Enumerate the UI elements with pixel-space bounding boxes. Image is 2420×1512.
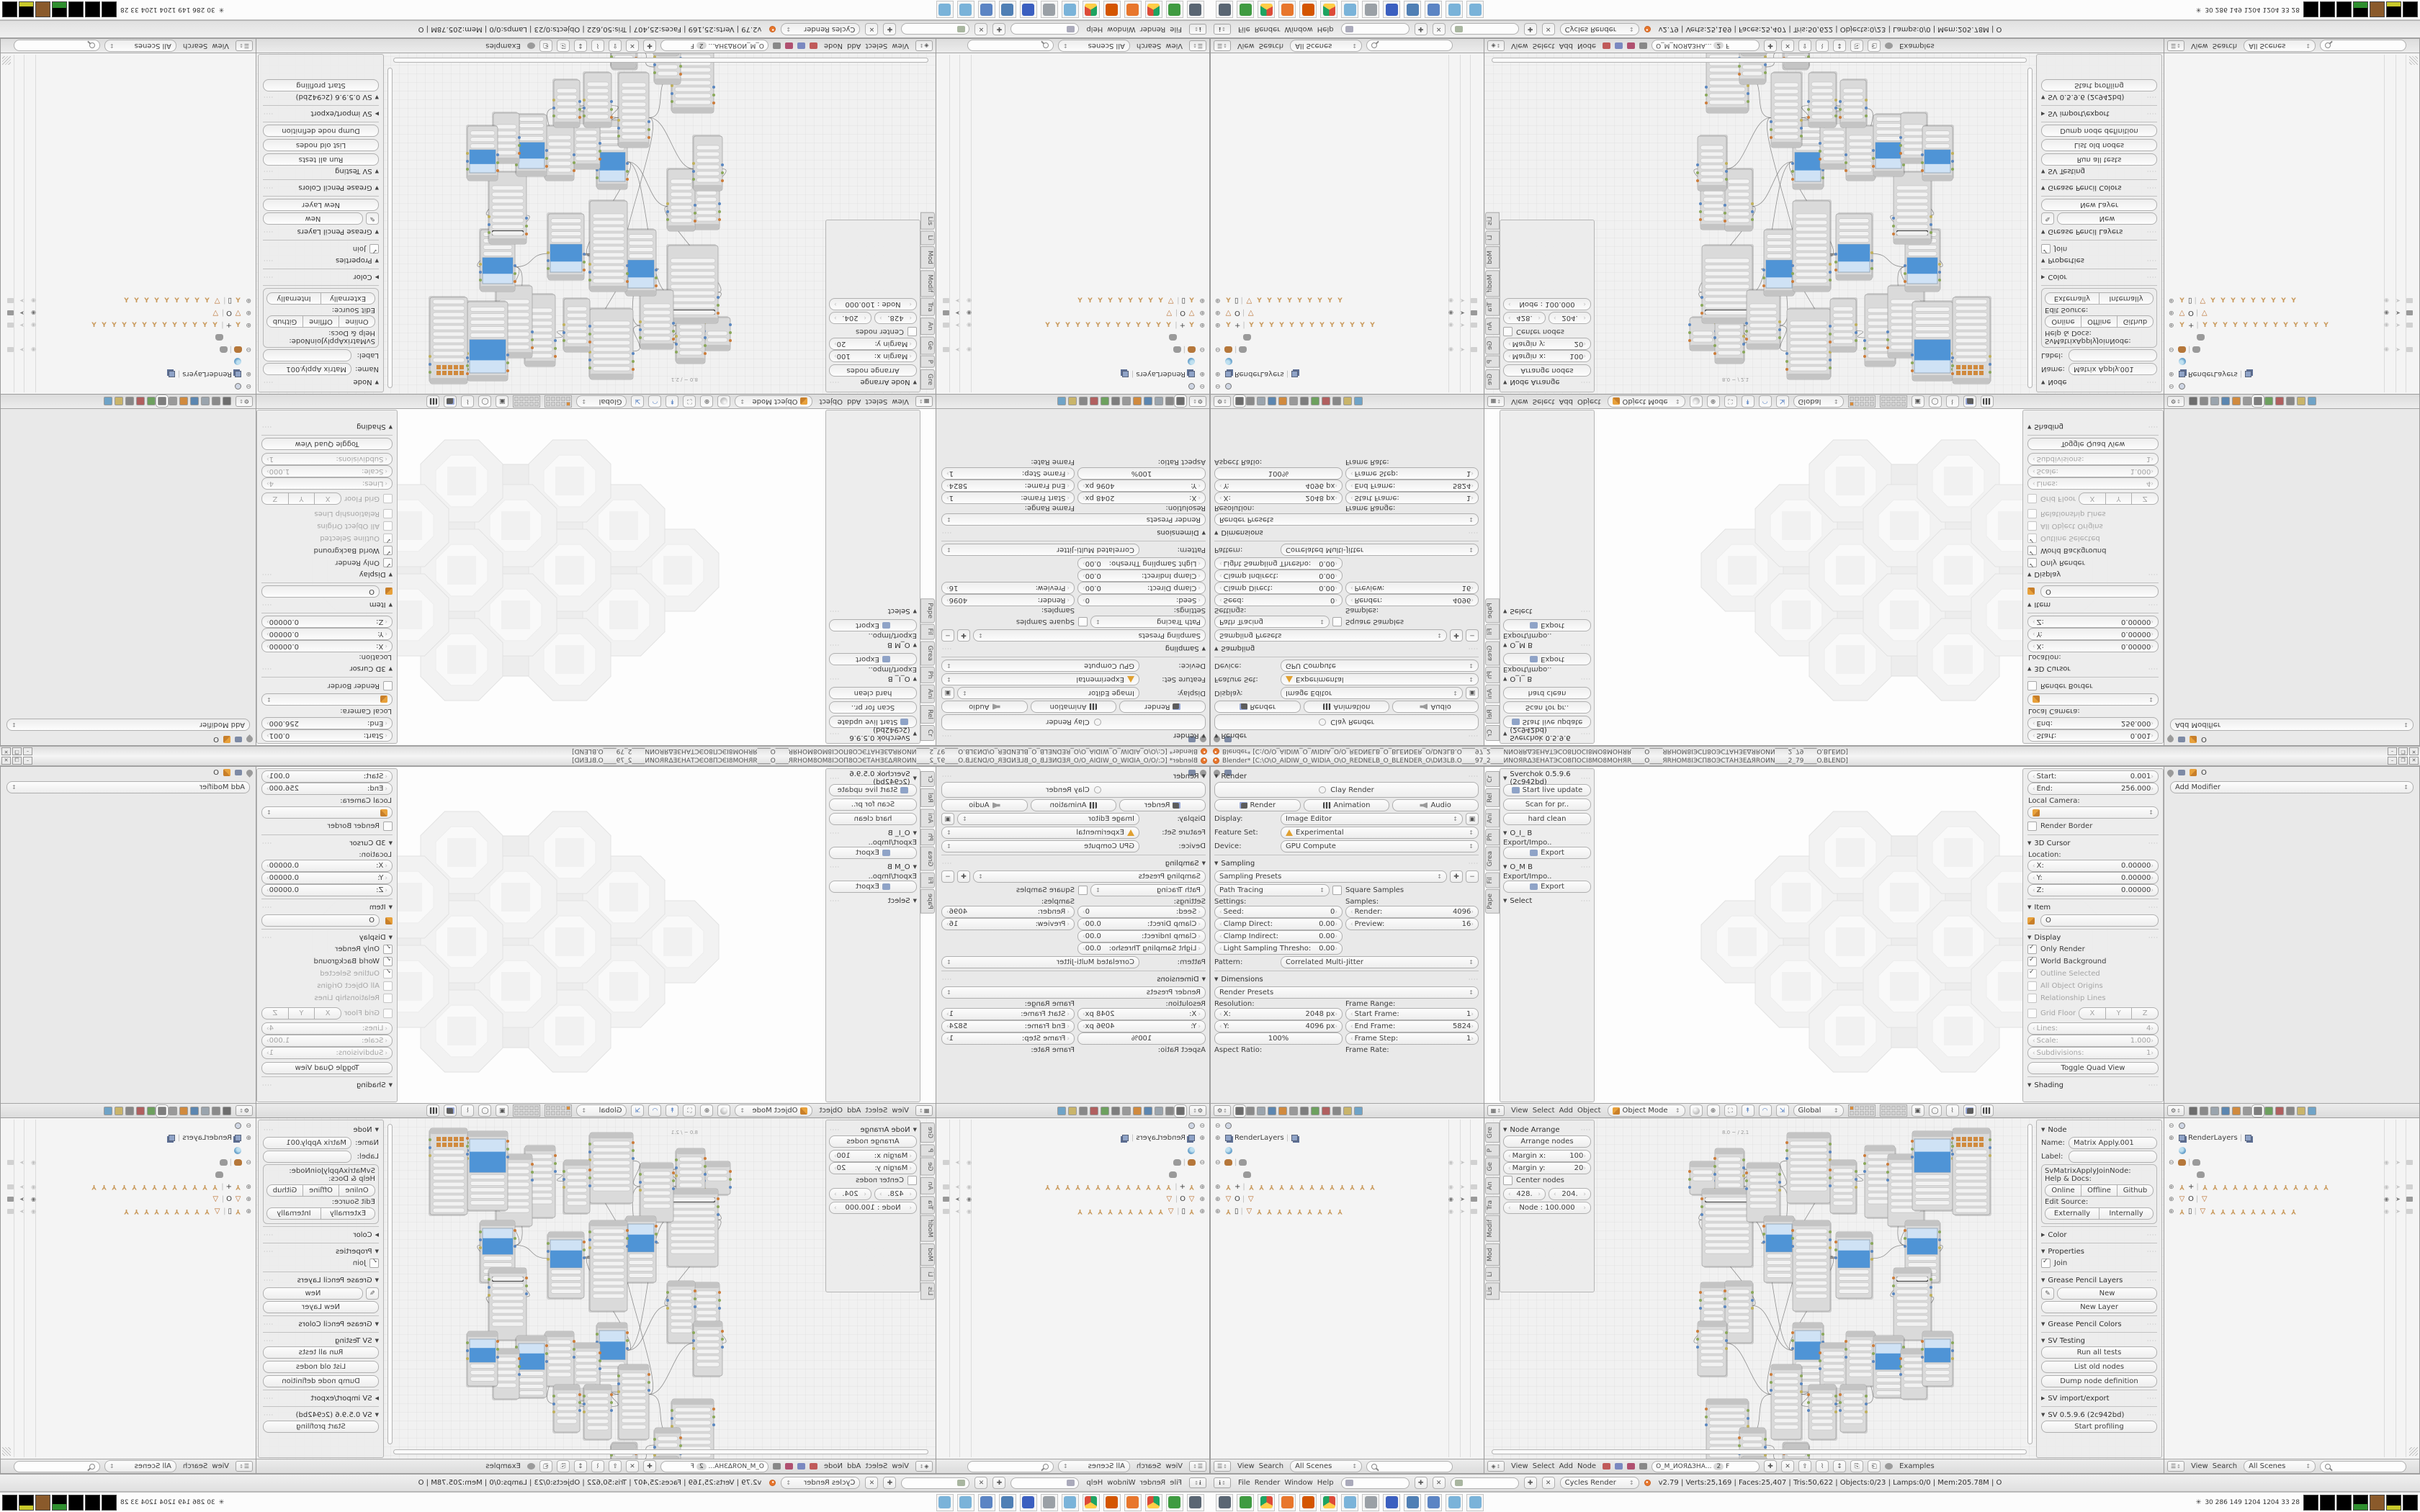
menu-add[interactable]: Add bbox=[1557, 42, 1575, 50]
sverchok-node[interactable] bbox=[1724, 168, 1754, 231]
dump-node-definition-button[interactable]: Dump node definition bbox=[263, 125, 379, 137]
outline-selected-checkbox[interactable]: Outline Selected bbox=[261, 532, 393, 544]
editor-type-button[interactable]: ☰ bbox=[2167, 40, 2184, 51]
clamp-indirect-field[interactable]: Clamp Indirect:0.00 bbox=[1077, 570, 1206, 582]
outliner-row[interactable]: ⊕▽O|▽◉➤ bbox=[1212, 307, 1482, 319]
layer-dot[interactable] bbox=[546, 397, 550, 401]
snap-magnet-button[interactable]: ⌇ bbox=[461, 395, 474, 408]
cursor-y-field[interactable]: Y:0.00000 bbox=[261, 628, 393, 640]
panel-header-node[interactable]: Node bbox=[2041, 1124, 2157, 1135]
rotate-manipulator-button[interactable]: ◠ bbox=[1759, 395, 1772, 408]
panel-header-sv-version[interactable]: SV 0.5.9.6 (2c942bd) bbox=[2041, 91, 2157, 103]
panel-header-sampling[interactable]: Sampling bbox=[1214, 858, 1479, 869]
file-manager-icon[interactable] bbox=[1166, 1494, 1183, 1511]
menu-file[interactable]: File bbox=[1236, 1479, 1252, 1487]
outliner-row[interactable]: ⊖ bbox=[1212, 380, 1482, 392]
renderable-camera-icon[interactable] bbox=[1471, 298, 1477, 303]
pivot-point-button[interactable]: ⊕ bbox=[1707, 1104, 1720, 1117]
render-presets-dropdown[interactable]: Render Presets bbox=[941, 986, 1206, 999]
expand-icon[interactable]: ⊖ bbox=[244, 1122, 251, 1130]
relationship-lines-checkbox[interactable]: Relationship Lines bbox=[2027, 508, 2159, 520]
sampling-presets-dropdown[interactable]: Sampling Presets bbox=[1214, 870, 1447, 883]
node-tree-selector[interactable]: O_M_ИОЯΔЗНА... 2 F bbox=[1652, 1461, 1760, 1472]
unlink-tree-button[interactable]: ✕ bbox=[626, 1460, 639, 1472]
layer-dot[interactable] bbox=[1896, 402, 1901, 406]
add-modifier-dropdown[interactable]: Add Modifier bbox=[6, 781, 250, 793]
end-frame-field[interactable]: End Frame:5824 bbox=[941, 1020, 1075, 1032]
github-button[interactable]: Github bbox=[266, 1184, 302, 1197]
object-tab-icon[interactable] bbox=[2232, 1107, 2241, 1115]
node-label-field[interactable] bbox=[263, 1151, 351, 1163]
maximize-button[interactable]: ❐ bbox=[12, 757, 22, 765]
selectable-cursor-icon[interactable]: ➤ bbox=[18, 346, 26, 354]
screenshot-tool-icon[interactable] bbox=[1187, 1, 1204, 19]
render-layers-tab-icon[interactable] bbox=[2200, 1107, 2208, 1115]
snap-magnet-button[interactable]: ⌇ bbox=[1816, 1460, 1829, 1472]
shelf-tab-grea[interactable]: Grea bbox=[920, 847, 935, 871]
shader-nodes-icon[interactable] bbox=[810, 1463, 817, 1470]
pin-icon[interactable] bbox=[245, 768, 254, 778]
layer-dot[interactable] bbox=[1891, 397, 1896, 401]
image-viewer-icon[interactable] bbox=[999, 1494, 1016, 1511]
menu-help[interactable]: Help bbox=[1084, 1479, 1105, 1487]
sverchok-node[interactable] bbox=[1807, 1385, 1837, 1441]
screenshot-tool-icon[interactable] bbox=[1187, 1494, 1204, 1511]
sverchok-node[interactable] bbox=[429, 1128, 469, 1216]
light-sampling-threshold-field[interactable]: Light Sampling Thresho:0.00 bbox=[1214, 942, 1343, 955]
texture-tab-icon[interactable] bbox=[1332, 1107, 1341, 1115]
scan-for-props-button[interactable]: Scan for pr.. bbox=[829, 701, 917, 714]
paste-node-button[interactable]: ⎗ bbox=[1868, 40, 1881, 52]
lock-icon-button[interactable]: ▣ bbox=[1466, 813, 1479, 825]
selectable-cursor-icon[interactable]: ➤ bbox=[18, 321, 26, 329]
expand-icon[interactable]: ⊕ bbox=[1215, 1196, 1222, 1203]
visibility-eye-icon[interactable]: ◉ bbox=[1447, 1183, 1455, 1191]
layer-dot[interactable] bbox=[1870, 402, 1874, 406]
pencil-icon-button[interactable]: ✎ bbox=[366, 212, 379, 225]
layer-dot[interactable] bbox=[524, 397, 529, 401]
image-viewer-icon[interactable] bbox=[999, 1, 1016, 19]
panel-header-properties[interactable]: Properties bbox=[2041, 255, 2157, 266]
panel-header-select[interactable]: Select bbox=[1503, 606, 1591, 617]
blender-icon[interactable] bbox=[1124, 1, 1142, 19]
shelf-tab-cr[interactable]: Cr bbox=[1485, 771, 1500, 787]
notepad2-icon[interactable] bbox=[1446, 1494, 1463, 1511]
frame-step-field[interactable]: Frame Step:1 bbox=[941, 467, 1075, 480]
notepad2-icon[interactable] bbox=[957, 1, 974, 19]
area-resize-corner[interactable] bbox=[2409, 1447, 2418, 1456]
window-titlebar[interactable]: Blender* [C:\O\O_AIDIW_O_WIDIA_O\O_REDNE… bbox=[0, 746, 1210, 756]
device-dropdown[interactable]: GPU Compute bbox=[941, 840, 1139, 852]
panel-header-grease-pencil-layers[interactable]: Grease Pencil Layers bbox=[2041, 226, 2157, 238]
sverchok-nodes-icon[interactable] bbox=[773, 42, 781, 49]
grid-y-button[interactable]: Y bbox=[2106, 492, 2133, 505]
visibility-eye-icon[interactable]: ◉ bbox=[965, 1183, 973, 1191]
selectable-cursor-icon[interactable]: ➤ bbox=[2394, 346, 2402, 354]
shelf-tab-an[interactable]: An bbox=[1485, 1177, 1500, 1194]
new-grease-layer-button[interactable]: New bbox=[2057, 1287, 2157, 1300]
lock-icon-button[interactable]: ▣ bbox=[941, 687, 954, 699]
shelf-tab-lis[interactable]: Lis bbox=[920, 212, 935, 229]
notepad3-icon[interactable] bbox=[1466, 1, 1484, 19]
add-preset-button[interactable]: ✚ bbox=[957, 629, 970, 642]
world-background-checkbox[interactable]: World Background bbox=[2027, 544, 2159, 557]
panel-header-sv-testing[interactable]: SV Testing bbox=[263, 1335, 379, 1346]
sampling-presets-dropdown[interactable]: Sampling Presets bbox=[973, 629, 1206, 642]
expand-icon[interactable]: ⊖ bbox=[244, 346, 251, 354]
panel-header-sv-import-export[interactable]: SV import/export bbox=[2041, 1392, 2157, 1404]
node-name-field[interactable]: Matrix Apply.001 bbox=[263, 363, 351, 375]
notepad3-icon[interactable] bbox=[936, 1494, 954, 1511]
remove-preset-button[interactable]: − bbox=[1466, 870, 1479, 883]
layer-dot[interactable] bbox=[529, 402, 534, 406]
panel-header-om-io[interactable]: O_M B bbox=[1503, 639, 1591, 651]
blender-icon[interactable] bbox=[1124, 1494, 1142, 1511]
sverchok-node[interactable] bbox=[1791, 1220, 1832, 1313]
sverchok-nodes-icon[interactable] bbox=[1639, 42, 1647, 49]
opengl-render-button[interactable] bbox=[444, 1104, 457, 1117]
panel-header-render[interactable]: Render bbox=[1214, 730, 1479, 742]
grid-floor-checkbox[interactable]: Grid Floor bbox=[2027, 492, 2076, 505]
outliner-row[interactable]: ⊕RenderLayers| bbox=[938, 368, 1208, 380]
display-dropdown[interactable]: Image Editor bbox=[1281, 687, 1463, 699]
manipulator-button[interactable]: ⛶ bbox=[1724, 395, 1737, 408]
world-tab-icon[interactable] bbox=[2221, 397, 2230, 406]
menu-search[interactable]: Search bbox=[1257, 1462, 1286, 1470]
vertical-scrollbar[interactable] bbox=[2027, 1124, 2033, 1444]
texture-tab-icon[interactable] bbox=[125, 1107, 134, 1115]
layer-dot[interactable] bbox=[566, 1106, 570, 1110]
chrome2-icon[interactable] bbox=[1083, 1494, 1100, 1511]
calculator-icon[interactable] bbox=[1425, 1, 1442, 19]
shelf-tab-fil[interactable]: Fil bbox=[1485, 873, 1500, 888]
expand-icon[interactable]: ⊕ bbox=[1198, 1135, 1205, 1142]
sverchok-node[interactable] bbox=[1829, 1160, 1857, 1215]
edit-internally-button[interactable]: Internally bbox=[266, 292, 321, 305]
layer-dot[interactable] bbox=[1891, 1111, 1896, 1115]
material-tab-icon[interactable] bbox=[1322, 1107, 1330, 1115]
shelf-tab-ph[interactable]: Ph bbox=[1485, 667, 1500, 683]
sverchok-node[interactable] bbox=[588, 1220, 629, 1313]
sverchok-node[interactable] bbox=[1724, 1281, 1754, 1344]
editor-type-button[interactable]: ⚙ bbox=[1214, 396, 1231, 407]
shelf-tab-fil[interactable]: Fil bbox=[920, 873, 935, 888]
shelf-tab-rel[interactable]: Rel bbox=[1485, 788, 1500, 807]
opengl-render-button[interactable] bbox=[444, 395, 457, 408]
display-dropdown[interactable]: Image Editor bbox=[1281, 813, 1463, 825]
selectable-cursor-icon[interactable]: ➤ bbox=[2394, 1183, 2402, 1191]
panel-header-om-io[interactable]: O_M B bbox=[829, 639, 917, 651]
sverchok-node[interactable] bbox=[1696, 1321, 1728, 1377]
data-tab-icon[interactable] bbox=[1311, 1107, 1319, 1115]
panel-header-color[interactable]: Color bbox=[2041, 1229, 2157, 1241]
list-old-nodes-button[interactable]: List old nodes bbox=[2041, 139, 2157, 151]
layer-dot[interactable] bbox=[514, 397, 519, 401]
panel-header-properties[interactable]: Properties bbox=[263, 255, 379, 266]
panel-header-grease-pencil-colors[interactable]: Grease Pencil Colors bbox=[2041, 1318, 2157, 1330]
render-engine-dropdown[interactable]: Cycles Render bbox=[1560, 1477, 1639, 1489]
node-tree-selector[interactable]: O_M_ИОЯΔЗНА... 2 F bbox=[660, 40, 768, 52]
feature-set-dropdown[interactable]: Experimental bbox=[941, 673, 1139, 685]
selectable-cursor-icon[interactable]: ➤ bbox=[954, 309, 962, 317]
selectable-cursor-icon[interactable]: ➤ bbox=[18, 309, 26, 317]
sverchok-node[interactable] bbox=[1951, 1128, 1991, 1216]
panel-header-select[interactable]: Select bbox=[829, 606, 917, 617]
opengl-animation-button[interactable] bbox=[426, 395, 439, 408]
menu-view[interactable]: View bbox=[889, 42, 911, 50]
editor-type-button[interactable]: ☰ bbox=[236, 40, 253, 51]
shelf-tab-ani[interactable]: Ani bbox=[1485, 685, 1500, 703]
panel-header-sv-testing[interactable]: SV Testing bbox=[2041, 166, 2157, 177]
all-object-origins-checkbox[interactable]: All Object Origins bbox=[2027, 520, 2159, 532]
render-tab-icon[interactable] bbox=[1235, 397, 1244, 406]
start-profiling-button[interactable]: Start profiling bbox=[263, 79, 379, 91]
layer-dot[interactable] bbox=[534, 402, 539, 406]
clay-render-button[interactable]: Clay Render bbox=[1214, 714, 1479, 730]
constraints-tab-icon[interactable] bbox=[169, 1107, 177, 1115]
outliner-row[interactable]: ⊕Y+|YYYYYYYYYYYYY◉➤ bbox=[938, 319, 1208, 331]
sverchok-node[interactable] bbox=[1839, 1385, 1868, 1434]
sverchok-node[interactable] bbox=[1770, 71, 1803, 148]
shelf-tab-pape[interactable]: Pape bbox=[1485, 889, 1500, 914]
menu-add[interactable]: Add bbox=[1557, 397, 1575, 405]
shelf-tab-modif[interactable]: Modif bbox=[920, 270, 935, 297]
volume-icon[interactable] bbox=[1362, 1, 1379, 19]
editor-type-button[interactable]: ▦ bbox=[1487, 1105, 1505, 1116]
add-scene-button[interactable]: ✚ bbox=[1524, 1477, 1537, 1489]
relationship-lines-checkbox[interactable]: Relationship Lines bbox=[261, 508, 393, 520]
render-presets-dropdown[interactable]: Render Presets bbox=[1214, 986, 1479, 999]
position-y-field[interactable]: 204. bbox=[829, 1188, 871, 1200]
scene-selector[interactable] bbox=[901, 24, 969, 35]
outliner-row[interactable]: ⊖ bbox=[2166, 380, 2418, 392]
scene-tab-icon[interactable] bbox=[201, 397, 210, 406]
center-nodes-checkbox[interactable]: Center nodes bbox=[1503, 1174, 1591, 1187]
object-tab-icon[interactable] bbox=[1278, 1107, 1287, 1115]
selectable-cursor-icon[interactable]: ➤ bbox=[18, 1158, 26, 1166]
position-x-field[interactable]: 428. bbox=[1503, 312, 1546, 324]
expand-icon[interactable]: ⊕ bbox=[1215, 1184, 1222, 1191]
expand-icon[interactable]: ⊖ bbox=[1215, 1159, 1222, 1166]
layer-dot[interactable] bbox=[1855, 1111, 1859, 1115]
data-tab-icon[interactable] bbox=[1101, 397, 1109, 406]
outliner-row[interactable]: ⊖|◉➤ bbox=[1212, 1156, 1482, 1169]
online-docs-button[interactable]: Online bbox=[2045, 1184, 2081, 1197]
sverchok-node[interactable] bbox=[624, 228, 658, 296]
notepad2-icon[interactable] bbox=[957, 1494, 974, 1511]
add-modifier-dropdown[interactable]: Add Modifier bbox=[6, 719, 250, 731]
expand-icon[interactable]: ⊕ bbox=[1198, 371, 1205, 378]
add-scene-button[interactable]: ✚ bbox=[1524, 23, 1537, 35]
shelf-tab-ph[interactable]: Ph bbox=[920, 829, 935, 845]
layer-dot[interactable] bbox=[1850, 397, 1854, 401]
panel-header-node-arrange[interactable]: Node Arrange bbox=[829, 1124, 917, 1135]
physics-tab-icon[interactable] bbox=[2308, 397, 2316, 406]
viewport-shading-button[interactable] bbox=[1690, 1104, 1703, 1117]
join-checkbox[interactable]: Join bbox=[2041, 1257, 2157, 1269]
expand-icon[interactable]: ⊕ bbox=[244, 1184, 251, 1191]
node-name-field[interactable]: Matrix Apply.001 bbox=[263, 1137, 351, 1149]
selectable-cursor-icon[interactable]: ➤ bbox=[2394, 1158, 2402, 1166]
editor-type-button[interactable]: ◈ bbox=[915, 40, 933, 51]
translate-manipulator-button[interactable]: ↟ bbox=[1742, 1104, 1754, 1117]
manipulator-button[interactable]: ⛶ bbox=[683, 1104, 696, 1117]
outliner-row[interactable]: ⊕RenderLayers| bbox=[2, 1132, 254, 1144]
renderable-camera-icon[interactable] bbox=[2406, 323, 2413, 328]
physics-tab-icon[interactable] bbox=[104, 397, 112, 406]
render-tab-icon[interactable] bbox=[1235, 1107, 1244, 1115]
panel-header-node-arrange[interactable]: Node Arrange bbox=[1503, 377, 1591, 388]
scene-selector[interactable] bbox=[1451, 24, 1519, 35]
sverchok-node[interactable] bbox=[1791, 199, 1832, 292]
panel-header-sampling[interactable]: Sampling bbox=[1214, 643, 1479, 654]
edit-internally-button[interactable]: Internally bbox=[2099, 1207, 2154, 1220]
list-old-nodes-button[interactable]: List old nodes bbox=[2041, 1361, 2157, 1373]
layer-dot[interactable] bbox=[1850, 1106, 1854, 1110]
panel-header-properties[interactable]: Properties bbox=[2041, 1246, 2157, 1257]
square-samples-checkbox[interactable]: Square Samples bbox=[1016, 884, 1088, 896]
world-tab-icon[interactable] bbox=[1144, 1107, 1152, 1115]
outliner-row[interactable] bbox=[1212, 331, 1482, 343]
sverchok-node[interactable] bbox=[466, 1331, 499, 1387]
panel-header-node[interactable]: Node bbox=[263, 1124, 379, 1135]
render-layers-tab-icon[interactable] bbox=[2200, 397, 2208, 406]
renderable-camera-icon[interactable] bbox=[943, 347, 949, 352]
delete-layout-button[interactable]: ✕ bbox=[1433, 1477, 1446, 1489]
layer-dot[interactable] bbox=[1881, 397, 1886, 401]
shelf-tab-li[interactable]: Li bbox=[920, 231, 935, 246]
grid-z-button[interactable]: Z bbox=[2132, 1007, 2159, 1020]
visibility-eye-icon[interactable]: ◉ bbox=[2383, 297, 2390, 305]
sverchok-node[interactable] bbox=[1770, 1364, 1803, 1441]
shelf-tab-an[interactable]: An bbox=[920, 1177, 935, 1194]
layer-dot[interactable] bbox=[551, 402, 555, 406]
pencil-icon-button[interactable]: ✎ bbox=[2041, 1287, 2054, 1300]
menu-view[interactable]: View bbox=[1509, 42, 1531, 50]
expand-icon[interactable]: ⊕ bbox=[244, 1135, 251, 1142]
item-name-field[interactable]: O bbox=[261, 585, 380, 598]
node-tree-selector[interactable]: O_M_ИОЯΔЗНА... 2 F bbox=[660, 1461, 768, 1472]
grid-floor-checkbox[interactable]: Grid Floor bbox=[2027, 1007, 2076, 1020]
world-tab-icon[interactable] bbox=[1144, 397, 1152, 406]
pin-icon[interactable] bbox=[245, 735, 254, 744]
render-audio-button[interactable]: Audio bbox=[941, 799, 1028, 811]
outliner-row[interactable]: ⊕Y+|YYYYYYYYYYYYY◉➤ bbox=[1212, 1181, 1482, 1193]
vertical-scrollbar[interactable] bbox=[2027, 68, 2033, 388]
opengl-animation-button[interactable] bbox=[426, 1104, 439, 1117]
panel-header-sampling[interactable]: Sampling bbox=[941, 643, 1206, 654]
sverchok-node[interactable] bbox=[1834, 212, 1873, 280]
outliner-row[interactable]: ⊕Y+|YYYYYYYYYYYYY◉➤ bbox=[1212, 319, 1482, 331]
layer-dot[interactable] bbox=[534, 397, 539, 401]
panel-header-3d-io[interactable]: O_I_ B bbox=[1503, 673, 1591, 685]
panel-header-display[interactable]: Display bbox=[261, 569, 393, 580]
edit-internally-button[interactable]: Internally bbox=[266, 1207, 321, 1220]
viewport-shading-button[interactable] bbox=[717, 1104, 730, 1117]
shelf-tab-cr[interactable]: Cr bbox=[920, 725, 935, 741]
world-tab-icon[interactable] bbox=[1268, 397, 1276, 406]
particles-tab-icon[interactable] bbox=[1068, 397, 1077, 406]
sverchok-node[interactable] bbox=[666, 1281, 696, 1344]
export-button-2[interactable]: Export bbox=[829, 619, 917, 631]
renderable-camera-icon[interactable] bbox=[943, 323, 949, 328]
shelf-tab-pape[interactable]: Pape bbox=[1485, 598, 1500, 623]
panel-header-display[interactable]: Display bbox=[2027, 569, 2159, 580]
export-button-2[interactable]: Export bbox=[1503, 619, 1591, 631]
selectable-cursor-icon[interactable]: ➤ bbox=[1458, 297, 1466, 305]
shelf-tab-pape[interactable]: Pape bbox=[920, 889, 935, 914]
texture-tab-icon[interactable] bbox=[2286, 397, 2295, 406]
shelf-tab-p[interactable]: P bbox=[1485, 1144, 1500, 1156]
selectable-cursor-icon[interactable]: ➤ bbox=[1458, 1183, 1466, 1191]
cursor-x-field[interactable]: X:0.00000 bbox=[2027, 860, 2159, 872]
shelf-tab-gre[interactable]: Gre bbox=[1485, 1122, 1500, 1143]
expand-icon[interactable]: ⊖ bbox=[1215, 346, 1222, 354]
selectable-cursor-icon[interactable]: ➤ bbox=[2394, 297, 2402, 305]
volume-icon[interactable] bbox=[1362, 1494, 1379, 1511]
pivot-point-button[interactable]: ⊕ bbox=[700, 395, 713, 408]
menu-view[interactable]: View bbox=[889, 1462, 911, 1470]
github-button[interactable]: Github bbox=[2117, 1184, 2154, 1197]
square-samples-checkbox[interactable]: Square Samples bbox=[1332, 616, 1404, 628]
layer-dot[interactable] bbox=[1870, 1111, 1874, 1115]
only-render-checkbox[interactable]: Only Render bbox=[2027, 557, 2159, 569]
resolution-percent-field[interactable]: 100% bbox=[1214, 1032, 1343, 1045]
texture-nodes-icon[interactable] bbox=[785, 1463, 793, 1470]
integrator-dropdown[interactable]: Path Tracing bbox=[1214, 616, 1330, 628]
shelf-tab-rel[interactable]: Rel bbox=[920, 788, 935, 807]
sverchok-node[interactable] bbox=[1892, 171, 1932, 244]
display-mode-dropdown[interactable]: All Scenes bbox=[104, 40, 176, 52]
selectable-cursor-icon[interactable]: ➤ bbox=[954, 1207, 962, 1215]
renderable-camera-icon[interactable] bbox=[7, 1209, 14, 1214]
sverchok-node[interactable] bbox=[1834, 1232, 1873, 1300]
shelf-tab-mod[interactable]: Mod bbox=[1485, 246, 1500, 269]
panel-header-3d-io[interactable]: O_I_ B bbox=[829, 673, 917, 685]
menu-object[interactable]: Object bbox=[817, 1107, 845, 1115]
particles-tab-icon[interactable] bbox=[1068, 1107, 1077, 1115]
render-button[interactable]: Render bbox=[1214, 799, 1301, 811]
outliner-row[interactable]: ⊕RenderLayers| bbox=[1212, 1132, 1482, 1144]
layer-dot[interactable] bbox=[519, 1111, 524, 1115]
scene-tab-icon[interactable] bbox=[1155, 397, 1163, 406]
outliner-row[interactable] bbox=[938, 331, 1208, 343]
integrator-dropdown[interactable]: Path Tracing bbox=[1090, 616, 1206, 628]
menu-select[interactable]: Select bbox=[863, 1107, 889, 1115]
clip-end-field[interactable]: End:256.000 bbox=[2027, 783, 2159, 795]
menu-add[interactable]: Add bbox=[845, 1107, 863, 1115]
sverchok-node[interactable] bbox=[639, 1163, 675, 1223]
sverchok-node[interactable] bbox=[1829, 297, 1857, 352]
sverchok-node[interactable] bbox=[429, 296, 469, 384]
expand-icon[interactable]: ⊕ bbox=[244, 322, 251, 329]
visibility-eye-icon[interactable]: ◉ bbox=[965, 321, 973, 329]
scene-tab-icon[interactable] bbox=[1155, 1107, 1163, 1115]
sverchok-node[interactable] bbox=[692, 1321, 724, 1377]
render-samples-field[interactable]: Render:4096 bbox=[941, 594, 1075, 606]
resolution-y-field[interactable]: Y:4096 px bbox=[1214, 480, 1343, 492]
world-tab-icon[interactable] bbox=[190, 1107, 199, 1115]
expand-icon[interactable]: ⊖ bbox=[2169, 1159, 2176, 1166]
compositing-nodes-icon[interactable] bbox=[797, 42, 805, 49]
rotate-manipulator-button[interactable]: ◠ bbox=[648, 1104, 661, 1117]
opengl-animation-button[interactable] bbox=[1981, 1104, 1994, 1117]
menu-view[interactable]: View bbox=[2189, 42, 2210, 50]
sverchok-node[interactable] bbox=[488, 171, 528, 244]
opengl-animation-button[interactable] bbox=[1981, 395, 1994, 408]
menu-window[interactable]: Window bbox=[1282, 25, 1314, 33]
resolution-y-field[interactable]: Y:4096 px bbox=[1077, 480, 1206, 492]
